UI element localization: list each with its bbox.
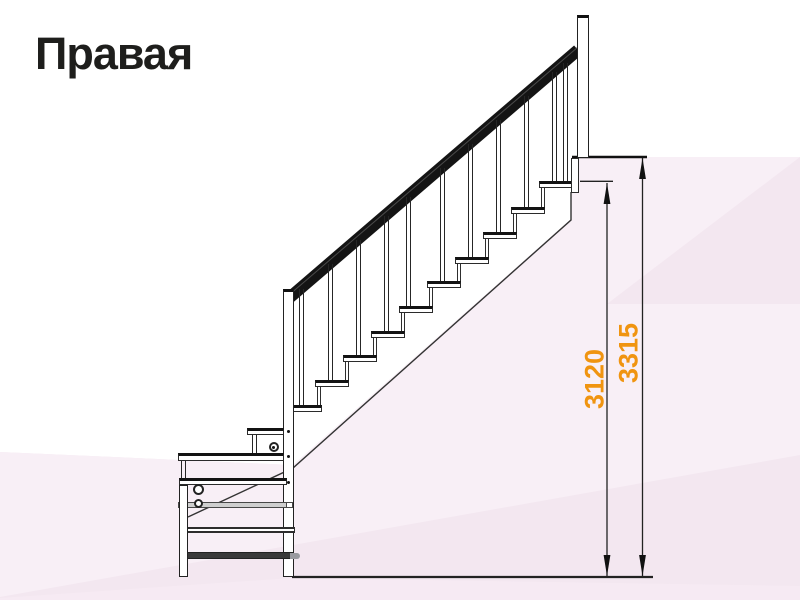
post-bolt-dot (287, 481, 290, 484)
winder-step (247, 428, 284, 435)
winder-step-support (252, 435, 257, 453)
step-riser (345, 362, 349, 381)
step-tread (293, 405, 322, 412)
top-newel-post (577, 15, 589, 158)
bolt-head (193, 484, 204, 495)
baluster (552, 72, 557, 181)
step-riser (485, 239, 489, 257)
baluster (406, 197, 411, 306)
dim-3120-arrow-up (604, 183, 611, 204)
step-tread (539, 181, 573, 188)
post-bolt-dot (287, 430, 290, 433)
dim-3315-arrow-down (639, 555, 646, 576)
handrail (288, 50, 578, 299)
handrail-highlight (289, 47, 578, 295)
bolt-center-dot (272, 446, 275, 449)
step-tread (483, 232, 517, 239)
dim-3120-value: 3120 (580, 349, 611, 409)
step-riser (513, 214, 517, 233)
dim-3120-arrow-down (604, 555, 611, 576)
baluster (299, 289, 304, 405)
bolt-head (194, 499, 203, 508)
lower-flight-rail-cap (286, 502, 293, 508)
landing-fascia-board (571, 158, 579, 193)
step-tread (371, 331, 405, 338)
step-tread (511, 207, 545, 214)
dim-3315-value: 3315 (614, 323, 645, 383)
step-riser (457, 263, 461, 281)
baluster (356, 240, 361, 355)
step-tread (315, 380, 349, 387)
baluster (524, 96, 529, 207)
baluster (440, 168, 445, 281)
step-riser (317, 387, 321, 406)
step-tread (455, 257, 489, 264)
staircase-diagram: Правая 3120 3315 (0, 0, 800, 600)
page-title: Правая (35, 28, 192, 80)
baluster (496, 120, 501, 232)
step-riser (541, 188, 545, 208)
central-newel-post (283, 289, 294, 577)
step-tread (399, 306, 433, 313)
step-riser (373, 337, 377, 355)
diagram-linework (0, 0, 800, 600)
post-bolt-dot (287, 455, 290, 458)
lower-flight-tread (179, 527, 295, 533)
baluster (468, 144, 473, 257)
baluster (563, 63, 568, 181)
lower-flight-left-post (179, 485, 188, 577)
step-tread (427, 281, 461, 288)
step-riser (429, 288, 433, 306)
platform-support (181, 461, 186, 478)
baluster (384, 216, 389, 331)
baluster (328, 264, 333, 380)
stringer-line (188, 192, 571, 517)
lower-flight-base-rail (179, 552, 293, 559)
landing-platform (178, 453, 284, 461)
dim-3315-arrow-up (639, 158, 646, 179)
step-riser (401, 312, 405, 331)
base-rail-end-cap (290, 553, 300, 559)
step-tread (343, 355, 377, 362)
